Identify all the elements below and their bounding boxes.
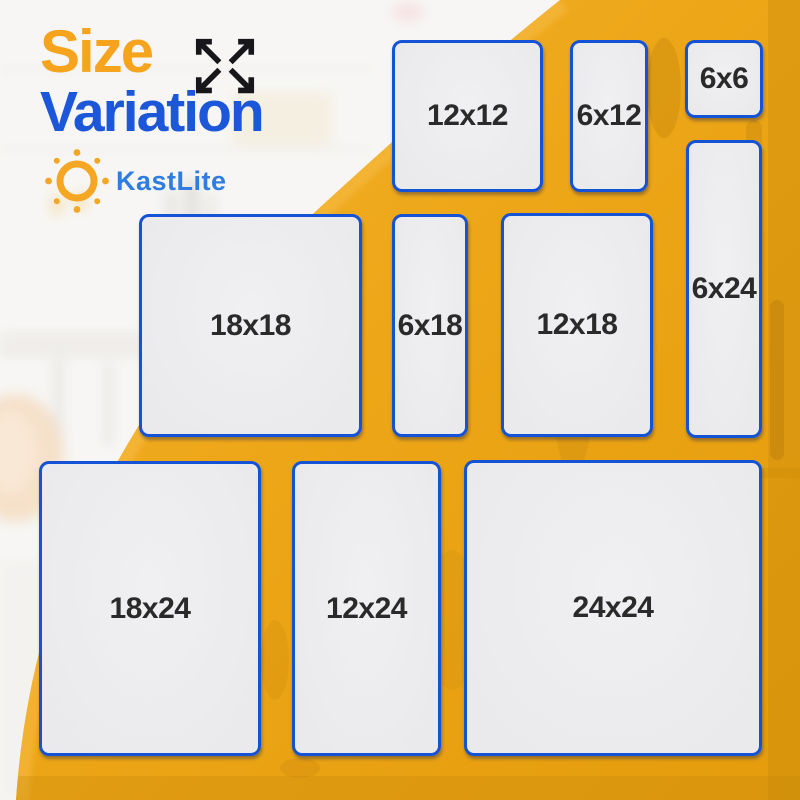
tool-silhouette	[647, 38, 681, 138]
size-panel-6x24: 6x24	[686, 140, 762, 438]
brand-logo: KastLite	[44, 148, 284, 214]
size-panel-24x24: 24x24	[464, 460, 762, 756]
page-title-variation: Variation	[40, 84, 263, 141]
size-label-12x12: 12x12	[427, 99, 508, 133]
size-label-6x18: 6x18	[398, 309, 463, 343]
size-panel-12x18: 12x18	[501, 213, 653, 437]
tool-silhouette	[280, 758, 320, 778]
size-panel-12x24: 12x24	[292, 461, 441, 756]
page-title-size: Size	[40, 22, 152, 82]
bench-shadow-strip	[0, 776, 800, 800]
size-label-12x18: 12x18	[537, 308, 618, 342]
size-label-6x6: 6x6	[700, 62, 749, 96]
size-panel-6x6: 6x6	[685, 40, 763, 118]
brand-name: KastLite	[116, 166, 227, 197]
size-panel-18x24: 18x24	[39, 461, 261, 756]
hanging-tool-shadow	[770, 300, 784, 460]
infographic-canvas: Size Variation KastLite 12	[0, 0, 800, 800]
size-label-6x12: 6x12	[577, 99, 642, 133]
size-label-12x24: 12x24	[326, 592, 407, 626]
size-label-24x24: 24x24	[573, 591, 654, 625]
tool-silhouette	[261, 620, 289, 700]
size-label-18x18: 18x18	[210, 309, 291, 343]
size-label-6x24: 6x24	[692, 272, 757, 306]
sun-icon	[44, 148, 110, 214]
size-panel-12x12: 12x12	[392, 40, 543, 192]
size-panel-6x12: 6x12	[570, 40, 648, 192]
size-panel-18x18: 18x18	[139, 214, 362, 437]
size-label-18x24: 18x24	[110, 592, 191, 626]
size-panel-6x18: 6x18	[392, 214, 468, 437]
